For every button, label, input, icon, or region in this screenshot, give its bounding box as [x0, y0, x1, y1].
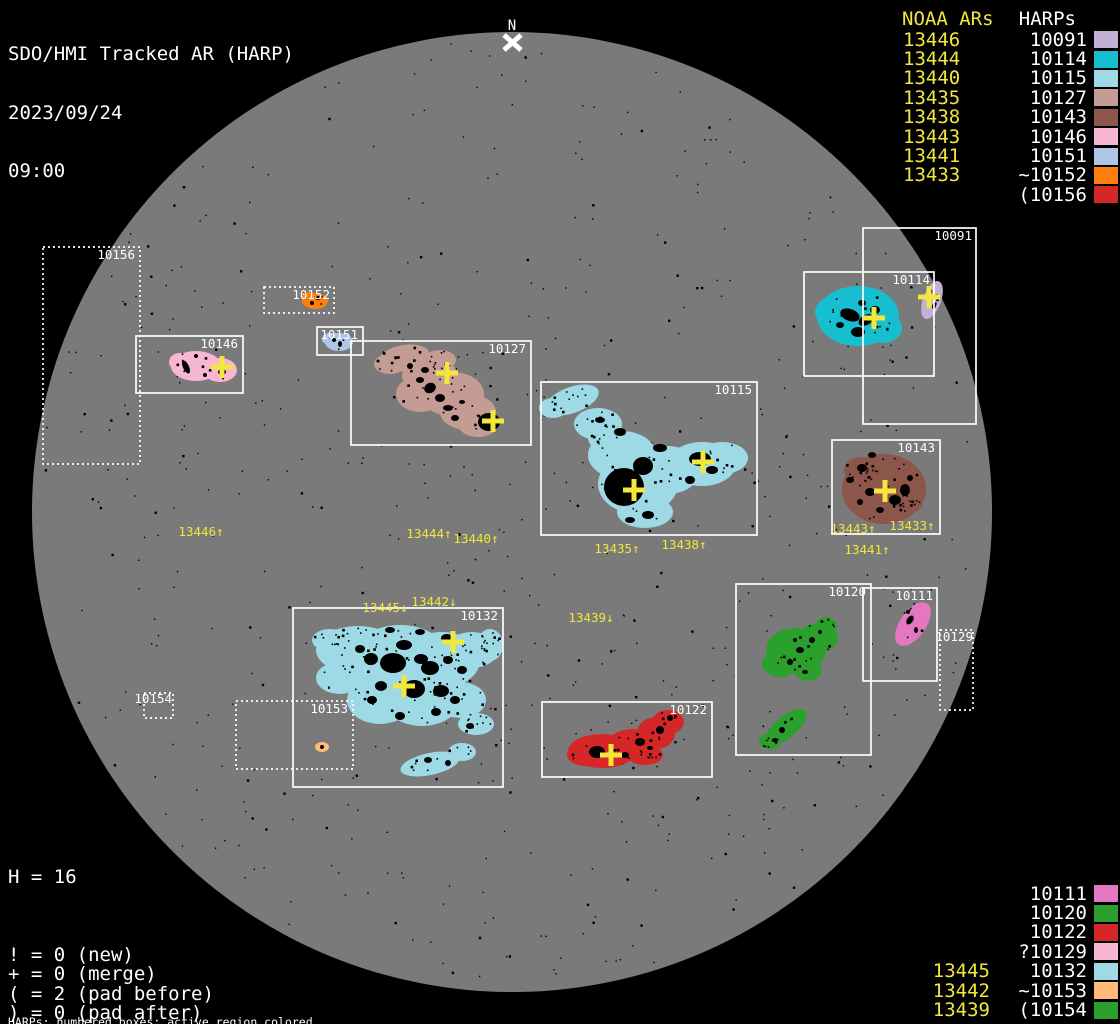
sunspot [876, 507, 884, 513]
sunspot [415, 629, 425, 635]
harp-box-label: 10143 [897, 440, 935, 455]
legend-row: 1343810143 [895, 108, 1118, 127]
legend-color-swatch [1094, 70, 1118, 87]
sunspot [443, 656, 453, 664]
harp-box-label: 10120 [828, 584, 866, 599]
legend-row: 1344110151 [895, 146, 1118, 165]
legend-noaa-number: 13433 [895, 164, 990, 186]
sunspot [642, 511, 654, 519]
sunspot [431, 708, 441, 716]
legend-row: 13433~10152 [895, 166, 1118, 185]
noaa-ar-label: 13435↑ [594, 541, 639, 556]
header: SDO/HMI Tracked AR (HARP) 2023/09/24 09:… [8, 6, 294, 221]
sunspot [203, 373, 207, 377]
active-region-blob [458, 713, 494, 735]
sunspot [364, 653, 378, 665]
noaa-ar-label: 13433↑ [889, 518, 934, 533]
legend-color-swatch [1094, 905, 1118, 922]
sunspot [653, 444, 667, 452]
sunspot [380, 653, 406, 673]
active-region-blob [762, 651, 798, 677]
sunspot [802, 670, 808, 674]
active-region-blob [794, 659, 822, 681]
sunspot [421, 367, 429, 373]
legend-top-header: NOAA ARs HARPs [895, 8, 1118, 30]
sunspot [818, 630, 822, 634]
legend-color-swatch [1094, 89, 1118, 106]
legend-color-swatch [1094, 943, 1118, 960]
active-region-blob [627, 745, 663, 765]
legend-row: 1344310146 [895, 127, 1118, 146]
legend-color-swatch [1094, 924, 1118, 941]
sunspot [857, 499, 863, 505]
harp-box-label: 10156 [97, 247, 135, 262]
legend-harp-header: HARPs [998, 8, 1087, 30]
sunspot [396, 640, 412, 650]
active-region-blob [539, 398, 567, 418]
legend-row: ?10129 [895, 942, 1118, 961]
noaa-ar-label: 13441↑ [844, 542, 889, 557]
legend-color-swatch [1094, 128, 1118, 145]
sunspot [443, 405, 453, 411]
sunspot [395, 712, 405, 720]
sunspot [836, 322, 844, 328]
active-region-blob [448, 743, 476, 761]
footnotes: HARPs: numbered boxes; active region col… [8, 991, 410, 1024]
harp-box-label: 10129 [935, 629, 973, 644]
harp-box-label: 10114 [892, 272, 930, 287]
legend-color-swatch [1094, 148, 1118, 165]
sunspot [450, 696, 460, 704]
sunspot [466, 723, 474, 729]
legend-row: 13442~10153 [895, 981, 1118, 1000]
harp-box-label: 10146 [200, 336, 238, 351]
legend-color-swatch [1094, 109, 1118, 126]
sunspot [424, 757, 432, 763]
sunspot [633, 457, 653, 475]
legend-row: 1344610091 [895, 30, 1118, 49]
sunspot [796, 647, 804, 653]
sunspot [889, 495, 901, 505]
sunspot [900, 484, 910, 496]
sunspot [809, 637, 815, 643]
page-title: SDO/HMI Tracked AR (HARP) [8, 45, 294, 65]
sunspot [787, 659, 793, 665]
legend-noaa-number: 13439 [895, 999, 990, 1021]
legend-color-swatch [1094, 186, 1118, 203]
legend-color-swatch [1094, 963, 1118, 980]
active-region-blob [424, 350, 456, 370]
harp-box-label: 10091 [934, 228, 972, 243]
sunspot [906, 610, 910, 614]
header-time: 09:00 [8, 162, 294, 182]
legend-color-swatch [1094, 982, 1118, 999]
legend-row: (10156 [895, 185, 1118, 204]
harp-box-label: 10154 [134, 691, 172, 706]
sunspot [457, 666, 467, 674]
legend-color-swatch [1094, 51, 1118, 68]
noaa-ar-label: 13446↑ [178, 524, 223, 539]
harp-box-label: 10132 [460, 608, 498, 623]
sunspot [656, 726, 664, 734]
legend-color-swatch [1094, 167, 1118, 184]
stats-line: + = 0 (merge) [8, 965, 225, 984]
sunspot [414, 654, 428, 664]
sunspot [194, 354, 198, 358]
noaa-ar-label: 13443↑ [830, 521, 875, 536]
sunspot [793, 638, 797, 642]
sunspot [416, 377, 424, 383]
noaa-ar-label: 13439↓ [568, 610, 613, 625]
active-region-blob [316, 662, 364, 694]
legend-row: 10120 [895, 903, 1118, 922]
sunspot [595, 417, 605, 423]
sunspot [407, 363, 413, 369]
harp-tracking-plot: 1015610146101521015110127101151014310091… [0, 0, 1120, 1024]
sunspot [647, 746, 653, 750]
active-region-blob [312, 629, 348, 651]
header-date: 2023/09/24 [8, 104, 294, 124]
sunspot [635, 738, 645, 746]
legend-color-swatch [1094, 885, 1118, 902]
sunspot [706, 466, 718, 474]
harp-region-10153 [315, 742, 329, 752]
sunspot [445, 760, 451, 766]
legend-row: 1343510127 [895, 88, 1118, 107]
legend-row: 1344010115 [895, 69, 1118, 88]
legend-color-swatch [1094, 1002, 1118, 1019]
legend-noaa-harp-bottom: 101111012010122?10129134451013213442~101… [895, 884, 1118, 1020]
north-label: N [508, 18, 516, 34]
legend-noaa-harp-top: NOAA ARs HARPs 1344610091134441011413440… [895, 8, 1118, 205]
sunspot [375, 681, 387, 691]
legend-color-swatch [1094, 31, 1118, 48]
legend-harp-number: (10154 [990, 999, 1087, 1021]
legend-row: 10111 [895, 884, 1118, 903]
sunspot [385, 627, 395, 633]
harp-count: H = 16 [8, 868, 225, 887]
sunspot [435, 394, 445, 402]
noaa-ar-label: 13444↑ [406, 526, 451, 541]
legend-noaa-header: NOAA ARs [895, 8, 998, 30]
harp-box-label: 10151 [320, 327, 358, 342]
sunspot [459, 400, 465, 404]
sunspot [685, 476, 695, 484]
sunspot [858, 300, 866, 306]
legend-row: 1344410114 [895, 49, 1118, 68]
sunspot [868, 452, 876, 458]
harp-box-label: 10152 [292, 287, 330, 302]
active-region-blob [374, 354, 406, 374]
sunspot [625, 517, 635, 523]
harp-box-label: 10115 [714, 382, 752, 397]
harp-box-label: 10127 [488, 341, 526, 356]
sunspot [451, 415, 459, 421]
harp-box-label: 10111 [895, 588, 933, 603]
sunspot [621, 752, 629, 758]
noaa-ar-label: 13445↓ [362, 600, 407, 615]
legend-top-rows: 1344610091134441011413440101151343510127… [895, 30, 1118, 205]
noaa-ar-label: 13440↑ [453, 531, 498, 546]
sunspot [355, 645, 365, 653]
noaa-ar-label: 13438↑ [661, 537, 706, 552]
sunspot [846, 477, 854, 483]
active-region-blob [477, 629, 503, 661]
sunspot [857, 464, 867, 472]
active-region-blob [759, 733, 781, 749]
harp-box-label: 10153 [310, 701, 348, 716]
sunspot [907, 475, 913, 481]
sunspot [779, 727, 785, 733]
harp-box-label: 10122 [669, 702, 707, 717]
sunspot [433, 685, 449, 697]
sunspot [367, 696, 377, 704]
legend-row: 13439(10154 [895, 1000, 1118, 1019]
sunspot [772, 738, 778, 742]
sunspot [865, 488, 875, 496]
sunspot [914, 627, 918, 633]
sunspot [614, 428, 626, 436]
legend-row: 1344510132 [895, 962, 1118, 981]
footnote-harps: HARPs: numbered boxes; active region col… [8, 1016, 410, 1024]
sunspot [320, 745, 324, 749]
noaa-ar-label: 13442↓ [411, 594, 456, 609]
legend-row: 10122 [895, 923, 1118, 942]
legend-harp-number: (10156 [990, 184, 1087, 206]
